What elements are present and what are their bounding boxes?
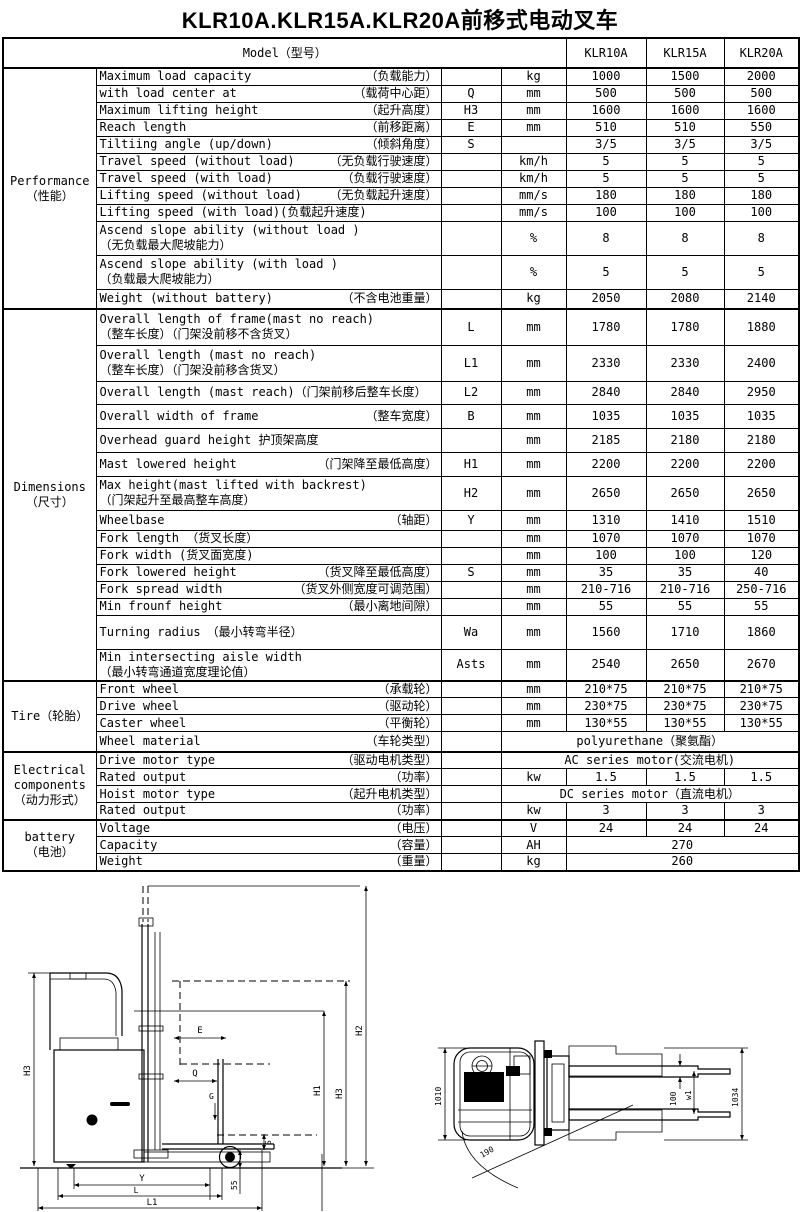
- symbol-cell: [441, 698, 501, 715]
- spec-row: Max height(mast lifted with backrest)（门架…: [3, 476, 799, 510]
- spec-value: 180: [566, 187, 646, 204]
- spec-value: 500: [646, 85, 724, 102]
- model-col-klr15a: KLR15A: [646, 38, 724, 68]
- spec-value: 2200: [646, 452, 724, 476]
- spec-value: 1600: [724, 102, 799, 119]
- spec-row: Lifting speed (without load)（无负载起升速度）mm/…: [3, 187, 799, 204]
- spec-value: 550: [724, 119, 799, 136]
- spec-value: 3: [566, 803, 646, 820]
- unit-cell: mm: [501, 404, 566, 428]
- spec-value: 2540: [566, 649, 646, 681]
- symbol-cell: [441, 581, 501, 598]
- spec-name: Fork spread width（货叉外侧宽度可调范围）: [96, 581, 441, 598]
- symbol-cell: L1: [441, 345, 501, 381]
- spec-value: 130*55: [724, 715, 799, 732]
- spec-name: Max height(mast lifted with backrest)（门架…: [96, 476, 441, 510]
- spec-value: polyurethane（聚氨酯）: [501, 732, 799, 752]
- dim-y: Y: [139, 1174, 145, 1184]
- model-header: Model（型号）: [3, 38, 566, 68]
- spec-name: Ascend slope ability (without load )（无负载…: [96, 221, 441, 255]
- spec-name: Voltage（电压）: [96, 820, 441, 837]
- spec-name: Fork lowered height（货叉降至最低高度）: [96, 564, 441, 581]
- spec-name: Rated output（功率）: [96, 769, 441, 786]
- spec-value: 500: [724, 85, 799, 102]
- spec-row: Fork spread width（货叉外侧宽度可调范围）mm210-71621…: [3, 581, 799, 598]
- spec-row: Weight (without battery)（不含电池重量）kg205020…: [3, 289, 799, 309]
- spec-value: 3: [646, 803, 724, 820]
- symbol-cell: [441, 837, 501, 854]
- unit-cell: mm: [501, 309, 566, 345]
- spec-value: 2650: [646, 649, 724, 681]
- spec-value: 210*75: [646, 681, 724, 698]
- symbol-cell: [441, 255, 501, 289]
- unit-cell: kg: [501, 289, 566, 309]
- symbol-cell: [441, 204, 501, 221]
- unit-cell: mm: [501, 510, 566, 530]
- spec-row: Tiltiing angle (up/down)（倾斜角度）S3/53/53/5: [3, 136, 799, 153]
- symbol-cell: S: [441, 564, 501, 581]
- top-view-drawing: 1010: [418, 1006, 788, 1212]
- dim-1034: 1034: [731, 1088, 740, 1107]
- unit-cell: mm: [501, 564, 566, 581]
- symbol-cell: [441, 153, 501, 170]
- spec-value: 1.5: [646, 769, 724, 786]
- spec-row: Ascend slope ability (with load )（负载最大爬坡…: [3, 255, 799, 289]
- spec-row: Caster wheel（平衡轮）mm130*55130*55130*55: [3, 715, 799, 732]
- symbol-cell: [441, 187, 501, 204]
- spec-row: Tire（轮胎）Front wheel（承载轮）mm210*75210*7521…: [3, 681, 799, 698]
- spec-value: AC series motor(交流电机): [501, 752, 799, 769]
- spec-value: 1710: [646, 615, 724, 649]
- spec-value: 2200: [566, 452, 646, 476]
- spec-value: 180: [724, 187, 799, 204]
- unit-cell: mm: [501, 530, 566, 547]
- spec-value: 1500: [646, 68, 724, 85]
- spec-name: Ascend slope ability (with load )（负载最大爬坡…: [96, 255, 441, 289]
- spec-value: 5: [566, 170, 646, 187]
- spec-value: 1780: [566, 309, 646, 345]
- unit-cell: km/h: [501, 153, 566, 170]
- spec-table: Model（型号） KLR10A KLR15A KLR20A Performan…: [2, 37, 800, 872]
- spec-row: Wheelbase（轴距）Ymm131014101510: [3, 510, 799, 530]
- spec-name: Rated output（功率）: [96, 803, 441, 820]
- spec-value: 1035: [724, 404, 799, 428]
- symbol-cell: [441, 752, 501, 769]
- spec-name: Lifting speed (without load)（无负载起升速度）: [96, 187, 441, 204]
- spec-value: 1600: [566, 102, 646, 119]
- unit-cell: %: [501, 221, 566, 255]
- spec-value: 3/5: [646, 136, 724, 153]
- spec-name: Turning radius （最小转弯半径）: [96, 615, 441, 649]
- dim-e: E: [197, 1026, 202, 1036]
- symbol-cell: [441, 854, 501, 871]
- symbol-cell: L2: [441, 381, 501, 404]
- spec-value: 1070: [646, 530, 724, 547]
- unit-cell: %: [501, 255, 566, 289]
- spec-value: 5: [566, 255, 646, 289]
- symbol-cell: H1: [441, 452, 501, 476]
- spec-row: Fork length （货叉长度）mm107010701070: [3, 530, 799, 547]
- unit-cell: kg: [501, 68, 566, 85]
- spec-name: Drive motor type（驱动电机类型）: [96, 752, 441, 769]
- spec-row: Hoist motor type（起升电机类型）DC series motor（…: [3, 786, 799, 803]
- symbol-cell: [441, 68, 501, 85]
- spec-value: 5: [646, 170, 724, 187]
- spec-value: 120: [724, 547, 799, 564]
- unit-cell: mm/s: [501, 187, 566, 204]
- unit-cell: mm/s: [501, 204, 566, 221]
- spec-row: with load center at（载荷中心距）Qmm500500500: [3, 85, 799, 102]
- spec-row: Overall length (mast no reach)（整车长度）（门架没…: [3, 345, 799, 381]
- section-label: Electricalcomponents（动力形式）: [3, 752, 96, 820]
- spec-name: Min frounf height（最小离地间隙）: [96, 598, 441, 615]
- unit-cell: mm: [501, 345, 566, 381]
- spec-value: 8: [646, 221, 724, 255]
- symbol-cell: E: [441, 119, 501, 136]
- spec-value: 2330: [646, 345, 724, 381]
- spec-name: Overall width of frame（整车宽度）: [96, 404, 441, 428]
- spec-value: 2140: [724, 289, 799, 309]
- spec-value: 1070: [566, 530, 646, 547]
- spec-value: 1070: [724, 530, 799, 547]
- spec-value: 500: [566, 85, 646, 102]
- spec-name: Reach length（前移距离）: [96, 119, 441, 136]
- spec-value: 2950: [724, 381, 799, 404]
- symbol-cell: [441, 715, 501, 732]
- spec-row: Overhead guard height 护顶架高度mm21852180218…: [3, 428, 799, 452]
- spec-value: 5: [646, 153, 724, 170]
- unit-cell: V: [501, 820, 566, 837]
- symbol-cell: [441, 786, 501, 803]
- spec-row: Electricalcomponents（动力形式）Drive motor ty…: [3, 752, 799, 769]
- spec-value: 2185: [566, 428, 646, 452]
- symbol-cell: [441, 289, 501, 309]
- symbol-cell: [441, 530, 501, 547]
- page-title: KLR10A.KLR15A.KLR20A前移式电动叉车: [0, 3, 800, 35]
- spec-value: 100: [566, 547, 646, 564]
- spec-value: 2180: [724, 428, 799, 452]
- spec-name: Travel speed (with load)（负载行驶速度）: [96, 170, 441, 187]
- spec-value: 55: [724, 598, 799, 615]
- spec-row: Lifting speed (with load)(负载起升速度)mm/s100…: [3, 204, 799, 221]
- unit-cell: mm: [501, 476, 566, 510]
- spec-row: Rated output（功率）kw333: [3, 803, 799, 820]
- symbol-cell: [441, 769, 501, 786]
- symbol-cell: [441, 803, 501, 820]
- unit-cell: mm: [501, 102, 566, 119]
- spec-name: Travel speed (without load)（无负载行驶速度）: [96, 153, 441, 170]
- symbol-cell: [441, 681, 501, 698]
- symbol-cell: H3: [441, 102, 501, 119]
- spec-value: 35: [566, 564, 646, 581]
- spec-value: 8: [724, 221, 799, 255]
- spec-name: Front wheel（承载轮）: [96, 681, 441, 698]
- spec-row: Maximum lifting height（起升高度）H3mm16001600…: [3, 102, 799, 119]
- spec-sheet: KLR10A.KLR15A.KLR20A前移式电动叉车 Model（型号） KL…: [0, 0, 800, 1212]
- spec-row: Turning radius （最小转弯半径）Wamm156017101860: [3, 615, 799, 649]
- section-label: Dimensions（尺寸）: [3, 309, 96, 681]
- spec-value: 55: [566, 598, 646, 615]
- symbol-cell: Asts: [441, 649, 501, 681]
- dim-1010: 1010: [434, 1087, 443, 1106]
- spec-name: Maximum load capacity（负载能力）: [96, 68, 441, 85]
- spec-value: 2650: [724, 476, 799, 510]
- spec-value: 2200: [724, 452, 799, 476]
- spec-value: 2330: [566, 345, 646, 381]
- unit-cell: mm: [501, 119, 566, 136]
- spec-value: 130*55: [646, 715, 724, 732]
- spec-value: 2050: [566, 289, 646, 309]
- spec-name: Hoist motor type（起升电机类型）: [96, 786, 441, 803]
- spec-value: 250-716: [724, 581, 799, 598]
- unit-cell: kw: [501, 769, 566, 786]
- unit-cell: mm: [501, 547, 566, 564]
- dim-w1: w1: [684, 1090, 693, 1100]
- spec-value: 210-716: [566, 581, 646, 598]
- side-view-drawing: H3 E Q G S H1 H3 H2 Y L: [12, 864, 404, 1212]
- spec-value: 1.5: [724, 769, 799, 786]
- spec-value: 2180: [646, 428, 724, 452]
- spec-value: 5: [566, 153, 646, 170]
- spec-value: 40: [724, 564, 799, 581]
- symbol-cell: [441, 598, 501, 615]
- spec-name: Drive wheel（驱动轮）: [96, 698, 441, 715]
- header-row: Model（型号） KLR10A KLR15A KLR20A: [3, 38, 799, 68]
- spec-value: 1880: [724, 309, 799, 345]
- unit-cell: mm: [501, 85, 566, 102]
- spec-value: 100: [646, 204, 724, 221]
- spec-row: Mast lowered height（门架降至最低高度）H1mm2200220…: [3, 452, 799, 476]
- spec-value: 5: [724, 170, 799, 187]
- unit-cell: mm: [501, 381, 566, 404]
- spec-value: 24: [724, 820, 799, 837]
- dim-h2: H2: [355, 1025, 365, 1036]
- spec-value: 1860: [724, 615, 799, 649]
- spec-name: Lifting speed (with load)(负载起升速度): [96, 204, 441, 221]
- dim-100: 100: [669, 1091, 678, 1106]
- spec-name: Weight (without battery)（不含电池重量）: [96, 289, 441, 309]
- dim-l: L: [134, 1186, 139, 1195]
- spec-value: 3: [724, 803, 799, 820]
- spec-value: 2400: [724, 345, 799, 381]
- symbol-cell: [441, 547, 501, 564]
- dim-g: G: [209, 1092, 214, 1101]
- symbol-cell: [441, 170, 501, 187]
- unit-cell: [501, 136, 566, 153]
- spec-value: 510: [646, 119, 724, 136]
- spec-name: Caster wheel（平衡轮）: [96, 715, 441, 732]
- spec-value: 2840: [646, 381, 724, 404]
- spec-value: 100: [646, 547, 724, 564]
- spec-value: 1035: [566, 404, 646, 428]
- unit-cell: mm: [501, 698, 566, 715]
- spec-value: 210*75: [724, 681, 799, 698]
- spec-name: Maximum lifting height（起升高度）: [96, 102, 441, 119]
- spec-name: Min intersecting aisle width（最小转弯通道宽度理论值…: [96, 649, 441, 681]
- dim-l1: L1: [147, 1198, 158, 1208]
- spec-row: Ascend slope ability (without load )（无负载…: [3, 221, 799, 255]
- spec-name: Overhead guard height 护顶架高度: [96, 428, 441, 452]
- unit-cell: mm: [501, 452, 566, 476]
- section-label: Performance（性能）: [3, 68, 96, 309]
- spec-value: 8: [566, 221, 646, 255]
- unit-cell: mm: [501, 681, 566, 698]
- unit-cell: mm: [501, 615, 566, 649]
- spec-value: 1000: [566, 68, 646, 85]
- symbol-cell: [441, 428, 501, 452]
- spec-row: Min intersecting aisle width（最小转弯通道宽度理论值…: [3, 649, 799, 681]
- spec-value: 5: [724, 153, 799, 170]
- spec-value: 180: [646, 187, 724, 204]
- spec-value: 2000: [724, 68, 799, 85]
- spec-name: Overall length (mast no reach)（整车长度）（门架没…: [96, 345, 441, 381]
- spec-value: 210*75: [566, 681, 646, 698]
- symbol-cell: H2: [441, 476, 501, 510]
- spec-value: 230*75: [646, 698, 724, 715]
- unit-cell: mm: [501, 428, 566, 452]
- spec-row: Travel speed (with load)（负载行驶速度）km/h555: [3, 170, 799, 187]
- spec-row: Travel speed (without load)（无负载行驶速度）km/h…: [3, 153, 799, 170]
- spec-row: Overall length (mast reach)（门架前移后整车长度）L2…: [3, 381, 799, 404]
- dim-steer-angle: 190: [479, 1145, 496, 1160]
- spec-value: 1780: [646, 309, 724, 345]
- symbol-cell: S: [441, 136, 501, 153]
- spec-name: Wheel material（车轮类型）: [96, 732, 441, 752]
- symbol-cell: [441, 732, 501, 752]
- spec-value: 35: [646, 564, 724, 581]
- spec-row: Reach length（前移距离）Emm510510550: [3, 119, 799, 136]
- spec-value: 1.5: [566, 769, 646, 786]
- spec-value: 2650: [566, 476, 646, 510]
- spec-row: Dimensions（尺寸）Overall length of frame(ma…: [3, 309, 799, 345]
- spec-name: Mast lowered height（门架降至最低高度）: [96, 452, 441, 476]
- unit-cell: mm: [501, 649, 566, 681]
- spec-row: Min frounf height（最小离地间隙）mm555555: [3, 598, 799, 615]
- spec-name: Overall length (mast reach)（门架前移后整车长度）: [96, 381, 441, 404]
- dim-55: 55: [230, 1180, 239, 1190]
- spec-value: 2670: [724, 649, 799, 681]
- spec-value: 24: [566, 820, 646, 837]
- spec-value: 1510: [724, 510, 799, 530]
- spec-value: 3/5: [566, 136, 646, 153]
- spec-value: 230*75: [724, 698, 799, 715]
- spec-value: 1310: [566, 510, 646, 530]
- spec-name: with load center at（载荷中心距）: [96, 85, 441, 102]
- spec-name: Fork width (货叉面宽度): [96, 547, 441, 564]
- spec-value: 210-716: [646, 581, 724, 598]
- symbol-cell: B: [441, 404, 501, 428]
- spec-value: 1035: [646, 404, 724, 428]
- model-col-klr10a: KLR10A: [566, 38, 646, 68]
- unit-cell: mm: [501, 598, 566, 615]
- spec-value: 3/5: [724, 136, 799, 153]
- spec-name: Overall length of frame(mast no reach)（整…: [96, 309, 441, 345]
- spec-row: Fork lowered height（货叉降至最低高度）Smm353540: [3, 564, 799, 581]
- dim-h3-right: H3: [335, 1088, 345, 1099]
- symbol-cell: Y: [441, 510, 501, 530]
- symbol-cell: Q: [441, 85, 501, 102]
- spec-value: 260: [566, 854, 799, 871]
- spec-value: 55: [646, 598, 724, 615]
- spec-row: Overall width of frame（整车宽度）Bmm103510351…: [3, 404, 799, 428]
- spec-value: 24: [646, 820, 724, 837]
- spec-value: 2080: [646, 289, 724, 309]
- spec-value: 100: [724, 204, 799, 221]
- unit-cell: kg: [501, 854, 566, 871]
- spec-value: 270: [566, 837, 799, 854]
- spec-name: Capacity（容量）: [96, 837, 441, 854]
- spec-row: Performance（性能）Maximum load capacity（负载能…: [3, 68, 799, 85]
- section-label: battery（电池）: [3, 820, 96, 871]
- spec-name: Fork length （货叉长度）: [96, 530, 441, 547]
- unit-cell: km/h: [501, 170, 566, 187]
- spec-value: 510: [566, 119, 646, 136]
- spec-value: 1600: [646, 102, 724, 119]
- spec-name: Tiltiing angle (up/down)（倾斜角度）: [96, 136, 441, 153]
- unit-cell: mm: [501, 715, 566, 732]
- unit-cell: mm: [501, 581, 566, 598]
- symbol-cell: [441, 221, 501, 255]
- spec-value: 1560: [566, 615, 646, 649]
- symbol-cell: Wa: [441, 615, 501, 649]
- dim-s: S: [264, 1140, 273, 1145]
- spec-value: 100: [566, 204, 646, 221]
- dim-h3-left: H3: [23, 1065, 33, 1076]
- model-col-klr20a: KLR20A: [724, 38, 799, 68]
- spec-value: 130*55: [566, 715, 646, 732]
- spec-value: DC series motor（直流电机）: [501, 786, 799, 803]
- dim-h1: H1: [313, 1085, 323, 1096]
- spec-value: 1410: [646, 510, 724, 530]
- symbol-cell: [441, 820, 501, 837]
- spec-row: Rated output（功率）kw1.51.51.5: [3, 769, 799, 786]
- spec-row: Capacity（容量）AH270: [3, 837, 799, 854]
- spec-value: 5: [646, 255, 724, 289]
- symbol-cell: L: [441, 309, 501, 345]
- spec-value: 2650: [646, 476, 724, 510]
- spec-name: Wheelbase（轴距）: [96, 510, 441, 530]
- spec-row: battery（电池）Voltage（电压）V242424: [3, 820, 799, 837]
- unit-cell: kw: [501, 803, 566, 820]
- spec-row: Wheel material（车轮类型）polyurethane（聚氨酯）: [3, 732, 799, 752]
- spec-value: 5: [724, 255, 799, 289]
- spec-value: 2840: [566, 381, 646, 404]
- unit-cell: AH: [501, 837, 566, 854]
- dim-q: Q: [192, 1069, 197, 1079]
- section-label: Tire（轮胎）: [3, 681, 96, 752]
- spec-row: Fork width (货叉面宽度)mm100100120: [3, 547, 799, 564]
- spec-value: 230*75: [566, 698, 646, 715]
- spec-row: Drive wheel（驱动轮）mm230*75230*75230*75: [3, 698, 799, 715]
